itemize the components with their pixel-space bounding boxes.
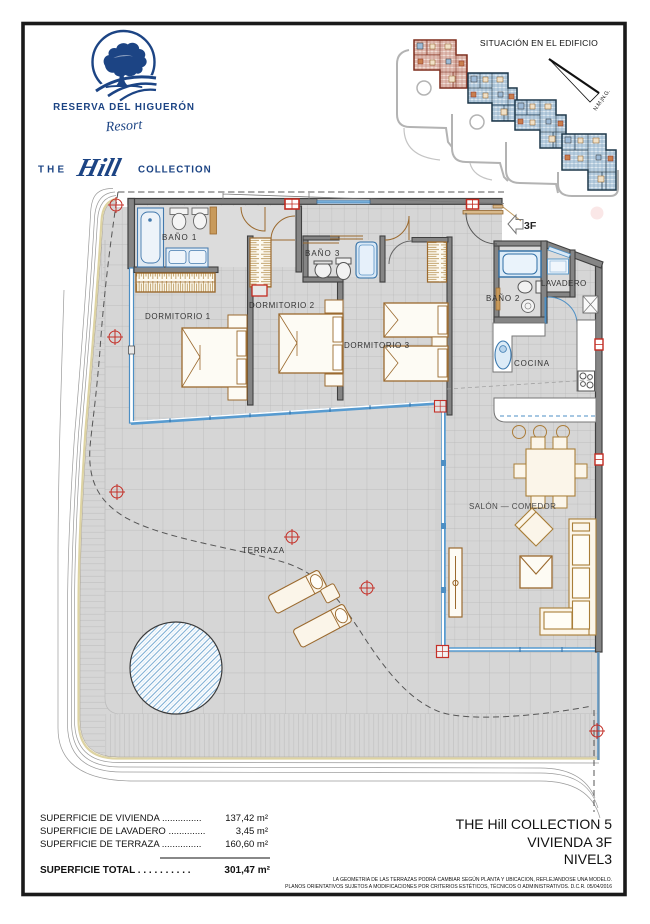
svg-text:LA GEOMETRIA DE LAS TERRAZAS P: LA GEOMETRIA DE LAS TERRAZAS PODRÁ CAMBI… — [333, 876, 612, 883]
svg-text:THE Hill COLLECTION 5: THE Hill COLLECTION 5 — [456, 816, 613, 832]
svg-text:160,60 m²: 160,60 m² — [225, 839, 268, 850]
svg-text:NIVEL3: NIVEL3 — [564, 851, 612, 867]
svg-text:SITUACIÓN EN EL EDIFICIO: SITUACIÓN EN EL EDIFICIO — [480, 38, 598, 48]
svg-text:SUPERFICIE TOTAL . . . . . . .: SUPERFICIE TOTAL . . . . . . . . . . — [40, 865, 191, 876]
svg-text:COLLECTION: COLLECTION — [138, 165, 212, 176]
svg-text:DORMITORIO 2: DORMITORIO 2 — [249, 301, 315, 310]
svg-text:3,45 m²: 3,45 m² — [236, 826, 268, 837]
svg-text:SUPERFICIE DE LAVADERO ......: SUPERFICIE DE LAVADERO .............. — [40, 826, 205, 837]
svg-text:Hill: Hill — [74, 152, 125, 182]
svg-text:COCINA: COCINA — [514, 359, 550, 368]
svg-text:LAVADERO: LAVADERO — [541, 279, 587, 288]
svg-text:SUPERFICIE DE VIVIENDA ......: SUPERFICIE DE VIVIENDA ............... — [40, 813, 202, 824]
svg-text:TERRAZA: TERRAZA — [242, 546, 285, 555]
svg-text:BAÑO 1: BAÑO 1 — [162, 233, 197, 242]
svg-text:SALÓN — COMEDOR: SALÓN — COMEDOR — [469, 502, 556, 511]
svg-text:THE: THE — [38, 165, 67, 176]
svg-text:DORMITORIO 3: DORMITORIO 3 — [344, 341, 410, 350]
svg-text:DORMITORIO 1: DORMITORIO 1 — [145, 312, 211, 321]
svg-text:137,42 m²: 137,42 m² — [225, 813, 268, 824]
svg-text:RESERVA DEL HIGUERÓN: RESERVA DEL HIGUERÓN — [53, 101, 195, 113]
svg-text:VIVIENDA 3F: VIVIENDA 3F — [527, 834, 612, 850]
svg-text:BAÑO 2: BAÑO 2 — [486, 294, 520, 303]
svg-text:301,47 m²: 301,47 m² — [224, 865, 270, 876]
svg-text:Resort: Resort — [104, 118, 144, 136]
svg-text:BAÑO 3: BAÑO 3 — [305, 249, 340, 258]
svg-text:PLANOS ORIENTATIVOS SUJETOS A: PLANOS ORIENTATIVOS SUJETOS A MODIFICACI… — [285, 883, 612, 890]
svg-text:3F: 3F — [524, 220, 537, 232]
svg-text:SUPERFICIE DE TERRAZA .......: SUPERFICIE DE TERRAZA ............... — [40, 839, 201, 850]
